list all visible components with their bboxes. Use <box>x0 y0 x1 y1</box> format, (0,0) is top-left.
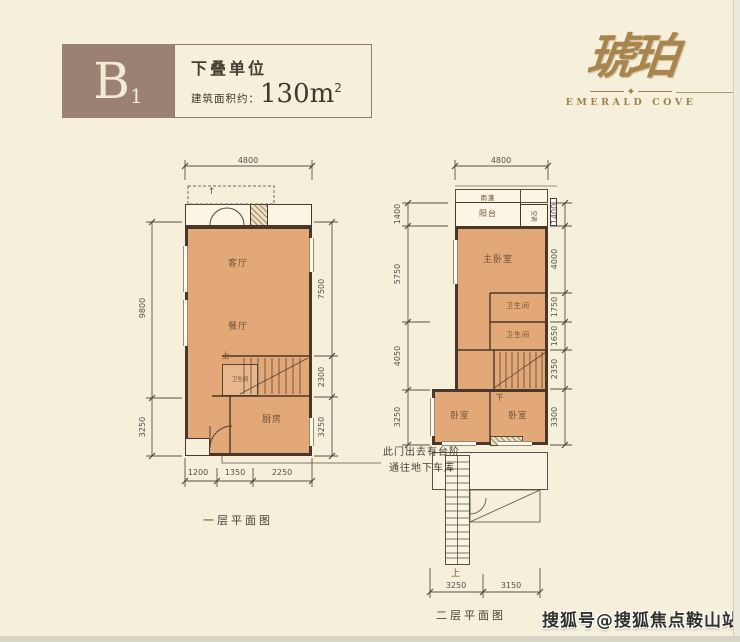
brand-logo: 琥珀 ◆ EMERALD COVE <box>556 28 706 108</box>
floor1-window <box>309 418 314 446</box>
area-label: 建筑面积约： <box>191 91 260 106</box>
unit-type-label: 下叠单位 <box>191 55 371 79</box>
floor1-living-label: 客厅 <box>218 256 258 269</box>
floor2-window <box>430 398 435 436</box>
unit-letter: B <box>93 56 130 106</box>
floor1-kitchen-label: 厨房 <box>252 412 292 425</box>
separator-line <box>638 91 672 92</box>
floor2-bathroom1-label: 卫生间 <box>496 301 540 311</box>
separator-line <box>590 91 624 92</box>
floor2-canopy-label: 雨蓬 <box>468 192 508 202</box>
brand-calligraphy: 琥珀 <box>553 28 709 86</box>
dim-label: 4800 <box>230 156 266 166</box>
floor2-bedroom-right-label: 卧室 <box>498 409 538 421</box>
area-superscript: 2 <box>334 81 342 95</box>
up-arrow-icon: ↑ <box>202 187 222 197</box>
floor1-window <box>309 238 314 272</box>
watermark: 搜狐号@搜狐焦点鞍山站 <box>542 606 740 631</box>
dim-label: 7500 <box>317 272 329 306</box>
logo-separator: ◆ <box>556 87 706 95</box>
floor1-canopy-dashed <box>188 186 274 204</box>
floor1-window <box>183 246 188 292</box>
floor1-note-line1: 此门出去有台阶 <box>383 443 460 458</box>
diamond-icon: ◆ <box>628 87 633 95</box>
floor1-note-leader <box>222 456 381 463</box>
floor1-note-line2: 通往地下车库 <box>389 459 455 474</box>
floor2-stairs-up-label: 上 <box>448 566 464 579</box>
dim-label: 9800 <box>138 291 150 325</box>
dim-label: 5750 <box>393 257 405 291</box>
floor2-window <box>453 240 458 284</box>
dim-label: 4000 <box>550 242 562 276</box>
right-edge-strip <box>733 0 740 642</box>
floor2-bathroom2-label: 卫生间 <box>496 330 540 340</box>
dim-label: 1400 <box>550 197 562 231</box>
floor1-bathroom-label: 卫生间 <box>224 375 256 383</box>
dim-label: 2250 <box>267 468 297 478</box>
dim-label: 3250 <box>393 400 405 434</box>
dim-label: 4800 <box>483 156 519 166</box>
floor1-entry-notch <box>186 438 210 455</box>
unit-info-box: 下叠单位 建筑面积约： 130m 2 <box>174 44 372 118</box>
floor1-stairs-up-label: 上 <box>219 350 233 361</box>
floor1-entry-band <box>185 204 312 226</box>
unit-area: 建筑面积约： 130m 2 <box>191 81 371 107</box>
bottom-edge-strip <box>0 636 740 642</box>
dim-label: 3300 <box>550 400 562 434</box>
logo-rule-line <box>676 92 740 93</box>
dim-label: 1200 <box>183 468 213 478</box>
floor1-window <box>183 300 188 346</box>
floor2-caption: 二层平面图 <box>426 607 516 623</box>
brand-name-en: EMERALD COVE <box>556 97 706 108</box>
dim-label: 1350 <box>220 468 250 478</box>
dim-label: 3250 <box>138 410 150 444</box>
floor1-equipment-box <box>250 204 268 226</box>
dim-label: 2350 <box>550 352 562 386</box>
unit-code-block: B 1 <box>62 44 174 118</box>
dim-label: 4050 <box>393 339 405 373</box>
area-value: 130m <box>260 81 334 107</box>
floorplan-page: B 1 下叠单位 建筑面积约： 130m 2 琥珀 ◆ EMERALD COVE <box>0 0 740 642</box>
dim-label: 1400 <box>393 197 405 231</box>
dim-label: 1650 <box>550 319 562 353</box>
floor1-caption: 一层平面图 <box>193 512 283 528</box>
floor2-balcony-label: 阳台 <box>468 208 508 219</box>
floor2-master-bedroom-label: 主卧室 <box>473 252 523 265</box>
dim-label: 3250 <box>441 581 471 591</box>
dim-label: 3150 <box>496 581 526 591</box>
dim-label: 3250 <box>317 410 329 444</box>
floor2-canopy-ext <box>520 189 548 203</box>
floor2-ac-label: 空调 <box>530 206 538 226</box>
floor1-dining-label: 餐厅 <box>218 319 258 332</box>
dim-label: 2300 <box>317 360 329 394</box>
unit-number: 1 <box>130 84 143 108</box>
floor2-bedroom-left-label: 卧室 <box>440 409 480 421</box>
floor2-stairs-down-label: 下 <box>493 392 507 403</box>
floor2-window <box>498 441 532 446</box>
